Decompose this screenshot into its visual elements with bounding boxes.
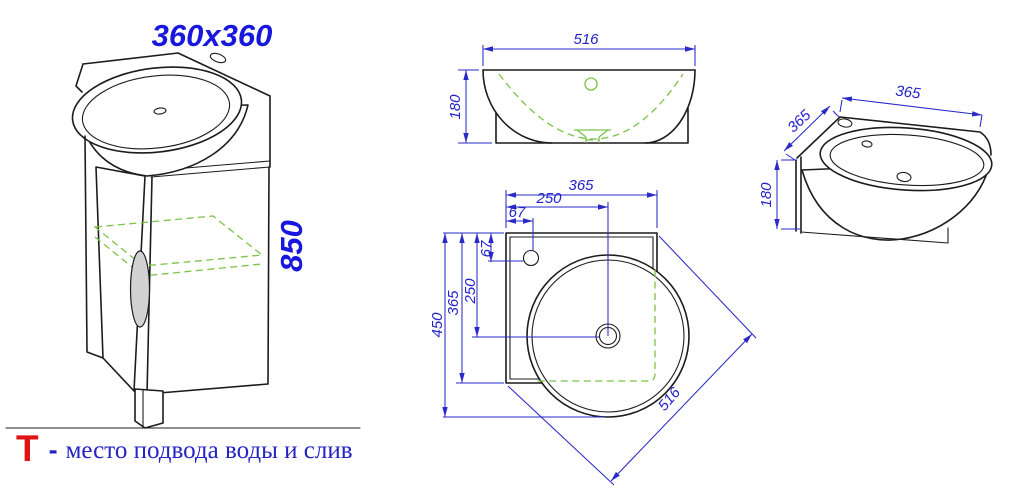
hidden-shelf [95, 216, 262, 276]
side-depth-label: 365 [784, 106, 814, 136]
height-label: 850 [274, 220, 309, 272]
drawing-canvas: 360x360 850 516 180 365 365 180 [0, 0, 1014, 493]
plan-total-depth-label: 450 [429, 312, 446, 338]
legend-dash: - [49, 437, 58, 464]
wall-edge [796, 157, 801, 233]
front-view: 516 180 [447, 31, 695, 143]
front-extension-lines [458, 45, 695, 143]
front-bowl-curves [483, 70, 695, 143]
side-height-label: 180 [758, 182, 775, 208]
hidden-drain-trap [574, 130, 611, 143]
plan-faucet-x-label: 67 [509, 204, 526, 221]
side-faucet-hole [837, 118, 852, 128]
hidden-basin-curve [499, 74, 683, 139]
size-label: 360x360 [152, 18, 273, 53]
side-width-label: 365 [894, 83, 922, 103]
perspective-view: 360x360 850 [6, 18, 360, 428]
legend-symbol: Т [16, 430, 39, 467]
faucet-hole-icon [209, 52, 227, 65]
plan-view: 365 250 67 450 365 250 67 516 [429, 177, 756, 485]
legend: Т - место подвода воды и слив [16, 430, 353, 467]
plan-faucet-hole [524, 251, 539, 266]
front-width-label: 516 [573, 31, 599, 48]
hidden-faucet-hole [585, 78, 597, 90]
plan-drain-x-label: 250 [535, 190, 562, 207]
door-handle [131, 251, 150, 327]
side-view: 365 365 180 [758, 83, 994, 243]
front-height-label: 180 [447, 94, 464, 120]
plan-drain-y-label: 250 [462, 278, 479, 305]
plan-width-label: 365 [568, 177, 594, 194]
cabinet-leg [135, 389, 163, 428]
plan-faucet-y-label: 67 [478, 240, 495, 257]
legend-text: место подвода воды и слив [66, 438, 353, 463]
technical-drawing-sheet: 360x360 850 516 180 365 365 180 [0, 0, 1014, 493]
plan-depth-label: 365 [445, 290, 462, 316]
